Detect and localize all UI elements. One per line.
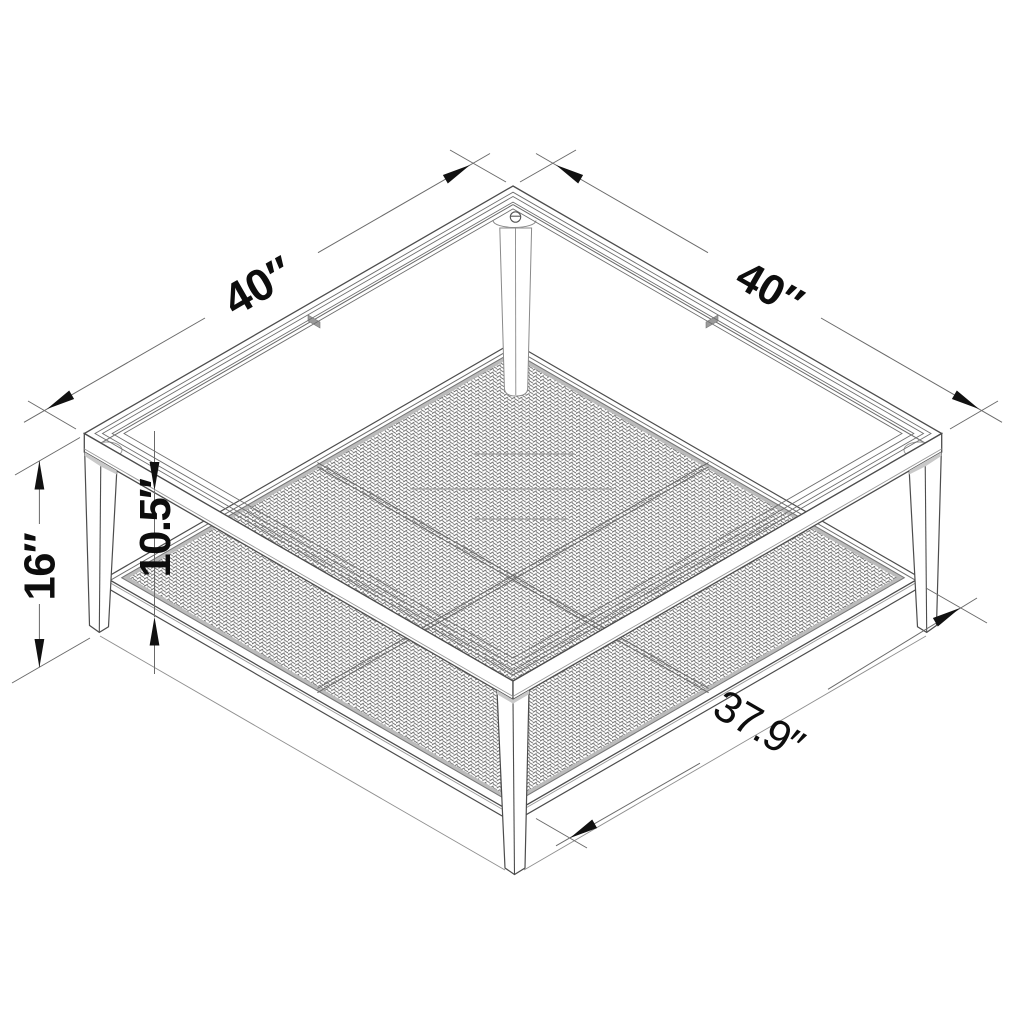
svg-text:16″: 16″ <box>16 532 64 600</box>
svg-text:10.5″: 10.5″ <box>132 478 180 578</box>
